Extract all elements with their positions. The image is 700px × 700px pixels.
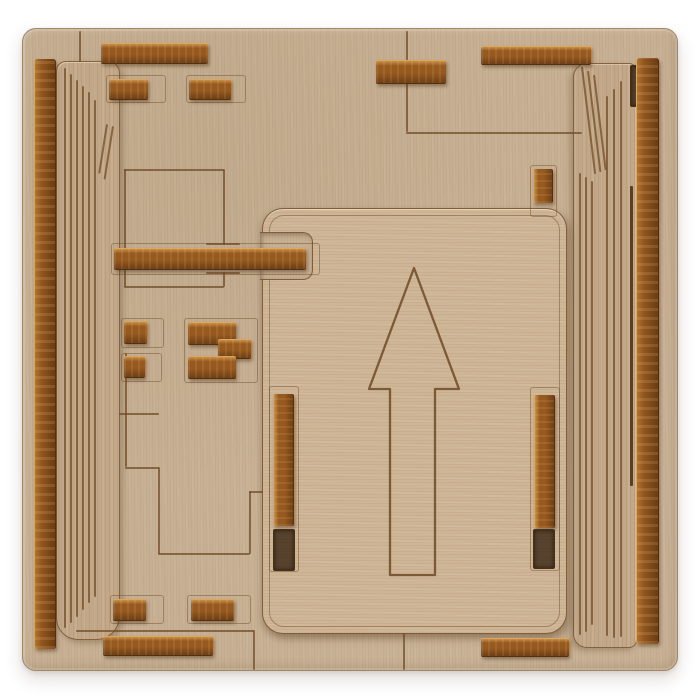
engraved-line	[406, 132, 582, 134]
upper-right-small-strip	[533, 169, 553, 203]
bottom-small-strip-1	[113, 599, 146, 621]
engraved-line	[158, 553, 250, 555]
horizontal-slider-bar	[114, 248, 306, 270]
plate-left-rail	[273, 394, 294, 526]
engraved-line	[620, 81, 622, 637]
top-right-long-strip	[481, 46, 591, 65]
engraved-line	[606, 96, 608, 636]
photo-background	[0, 0, 700, 700]
engraved-line	[253, 630, 255, 670]
engraved-line	[579, 173, 581, 635]
engraved-line	[206, 243, 240, 245]
engraved-line	[613, 89, 615, 638]
bottom-right-strip	[481, 638, 569, 657]
left-edge-tall-strip	[34, 59, 56, 649]
slot-cutout	[533, 529, 555, 569]
z-piece-bottom	[188, 356, 236, 379]
engraved-line	[76, 630, 254, 632]
engraved-line	[124, 169, 224, 171]
engraved-line	[94, 100, 96, 597]
top-small-strip-2	[189, 79, 231, 100]
bottom-left-long-strip	[103, 636, 213, 656]
engraved-line	[249, 491, 263, 493]
engraved-line	[223, 272, 225, 287]
engraved-line	[403, 633, 405, 670]
mid-left-strip-1	[124, 321, 147, 344]
engraved-line	[125, 467, 159, 469]
engraved-line	[70, 74, 72, 623]
slot-cutout	[273, 529, 295, 571]
engraved-line	[64, 68, 66, 628]
engraved-line	[585, 177, 587, 632]
right-side-panel	[573, 63, 637, 648]
top-small-strip-1	[109, 79, 148, 100]
engraved-line	[124, 286, 224, 288]
engraved-line	[88, 92, 90, 603]
top-center-strip	[376, 60, 446, 84]
engraved-line	[630, 186, 633, 486]
engraved-line	[206, 272, 240, 274]
right-edge-tall-strip	[636, 58, 659, 644]
engraved-line	[158, 467, 160, 554]
engraved-line	[249, 491, 251, 554]
engraved-line	[79, 31, 81, 62]
engraved-line	[119, 413, 159, 415]
bottom-small-strip-2	[191, 599, 234, 621]
top-left-long-strip	[101, 43, 208, 64]
puzzle-board	[22, 28, 678, 671]
mid-left-strip-2	[124, 356, 145, 378]
plate-right-rail	[534, 395, 555, 528]
engraved-line	[591, 181, 593, 625]
engraved-line	[82, 86, 84, 610]
engraved-line	[223, 169, 225, 245]
engraved-line	[76, 80, 78, 617]
